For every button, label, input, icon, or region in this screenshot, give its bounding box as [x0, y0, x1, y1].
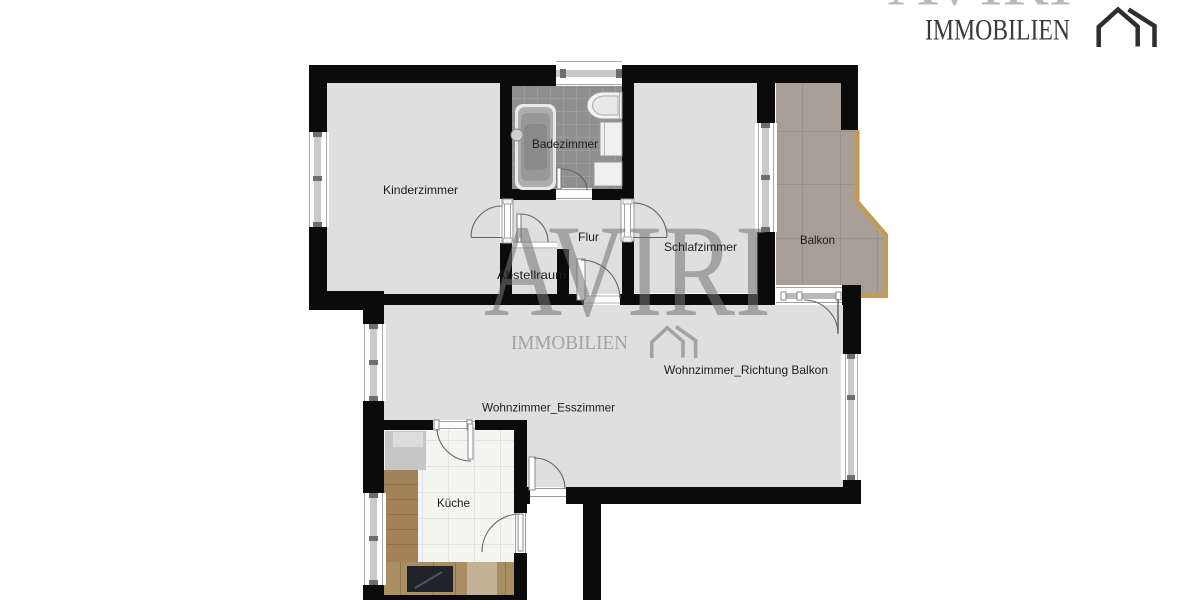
- svg-text:Wohnzimmer_Esszimmer: Wohnzimmer_Esszimmer: [482, 401, 615, 415]
- svg-text:Schlafzimmer: Schlafzimmer: [664, 240, 737, 254]
- svg-text:IMMOBILIEN: IMMOBILIEN: [925, 14, 1070, 47]
- svg-text:Kinderzimmer: Kinderzimmer: [383, 183, 458, 197]
- svg-text:Abstellraum: Abstellraum: [497, 268, 566, 282]
- svg-text:IMMOBILIEN: IMMOBILIEN: [511, 332, 628, 354]
- svg-text:Wohnzimmer_Richtung Balkon: Wohnzimmer_Richtung Balkon: [664, 363, 828, 377]
- svg-text:Badezimmer: Badezimmer: [532, 137, 598, 151]
- svg-text:Küche: Küche: [437, 496, 470, 510]
- svg-text:Balkon: Balkon: [800, 233, 835, 247]
- svg-text:Flur: Flur: [578, 230, 599, 244]
